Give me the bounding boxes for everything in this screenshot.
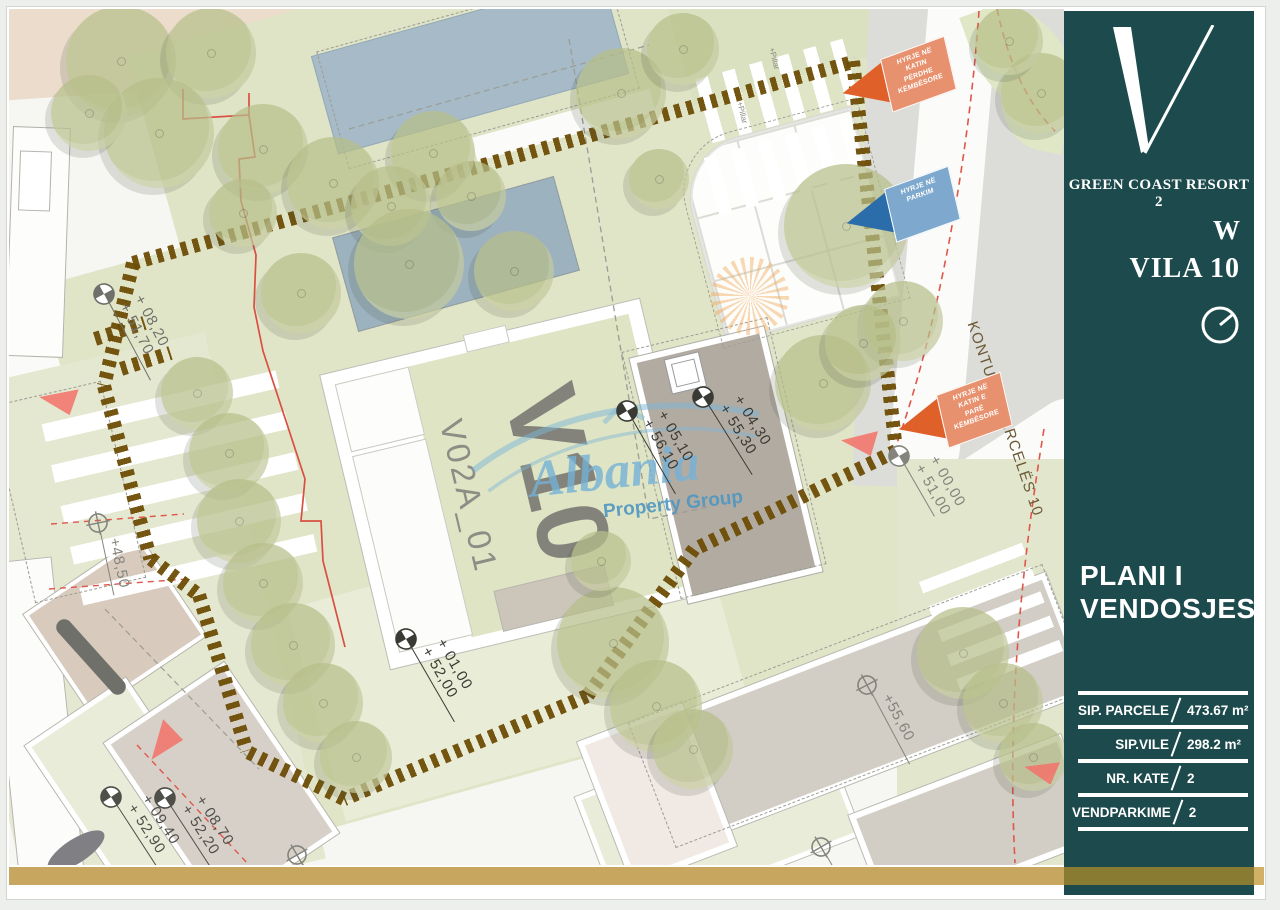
tree [825,305,901,381]
row-value: 2 [1183,771,1248,786]
tree [354,209,464,319]
compass-icon [1198,303,1242,347]
table-rule [1078,827,1248,831]
tree [436,161,506,231]
plan-title-line1: PLANI I [1080,559,1256,592]
tree [647,13,719,85]
tree [975,9,1043,75]
tree [653,709,733,789]
tree [51,75,127,151]
row-label: NR. KATE [1072,771,1169,786]
tree [320,721,392,793]
tree [999,723,1064,791]
site-plan-map: V10 V02A_01 KONTURI I PARCELË [9,9,1064,865]
row-label: SIP.VILE [1072,737,1169,752]
table-row: SIP. PARCELE 473.67 m² [1072,695,1248,725]
page-background: V10 V02A_01 KONTURI I PARCELË [0,0,1280,910]
row-value: 473.67 m² [1183,703,1249,718]
row-label: SIP. PARCELE [1072,703,1169,718]
villa-room [335,367,425,453]
table-row: VENDPARKIME 2 [1072,797,1248,827]
table-row: NR. KATE 2 [1072,763,1248,793]
unit-name: VILA 10 [1130,253,1240,285]
tree [209,179,277,247]
gold-bar [9,867,1064,885]
unit-letter: W [1213,215,1240,246]
leader-line [826,855,840,865]
crosshair-icon [84,509,112,537]
tree [571,531,631,591]
slash-divider [1169,731,1183,757]
slash-divider [1169,697,1183,723]
brand-logo-v [1099,25,1219,155]
title-block-sidebar: GREEN COAST RESORT 2 W VILA 10 PLANI I V… [1064,11,1254,895]
plan-sheet: V10 V02A_01 KONTURI I PARCELË [6,6,1266,900]
plan-title: PLANI I VENDOSJES [1080,559,1256,625]
gold-bar-dark [1064,867,1254,885]
gold-bar-stub [1254,867,1264,885]
info-table: SIP. PARCELE 473.67 m² SIP.VILE 298.2 m²… [1072,691,1248,831]
table-row: SIP.VILE 298.2 m² [1072,729,1248,759]
tree [474,231,554,311]
left-building-room [18,150,52,211]
row-value: 298.2 m² [1183,737,1248,752]
plan-title-line2: VENDOSJES [1080,592,1256,625]
sun-rays-icon [711,257,789,335]
brand-name: GREEN COAST RESORT 2 [1064,177,1254,211]
row-value: 2 [1185,805,1248,820]
slash-divider [1171,799,1185,825]
tree [629,149,689,209]
slash-divider [1169,765,1183,791]
row-label: VENDPARKIME [1072,805,1171,820]
tree [261,253,341,333]
